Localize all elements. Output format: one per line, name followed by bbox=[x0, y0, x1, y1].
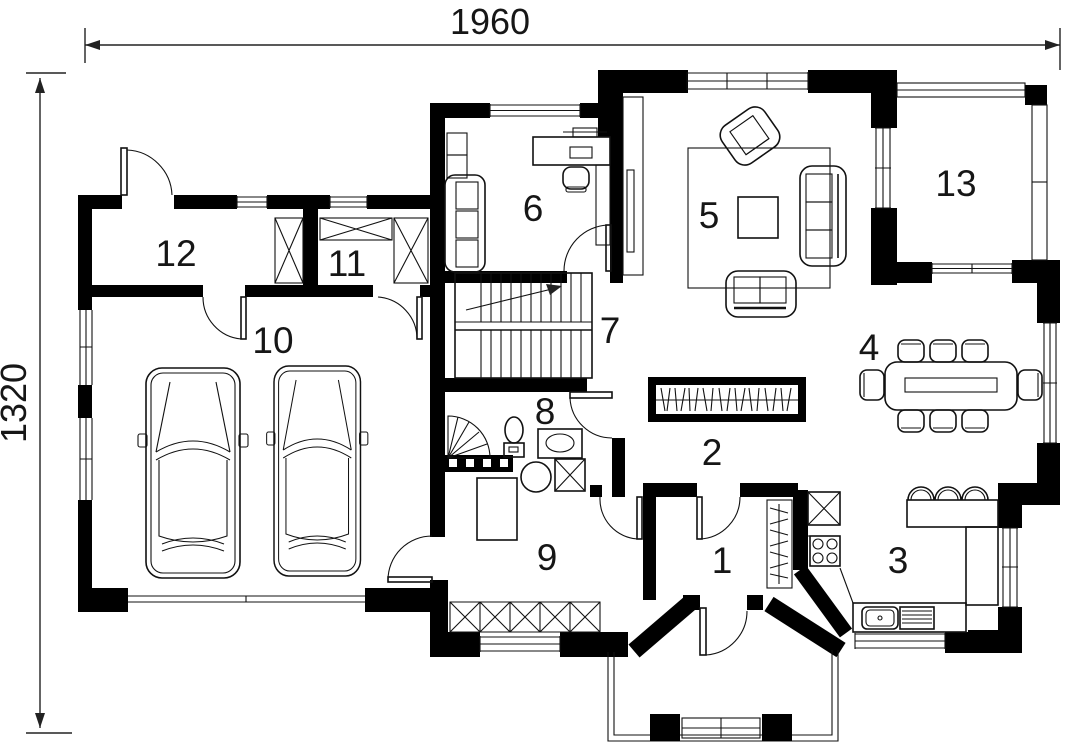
room-label-11: 11 bbox=[328, 243, 366, 284]
boiler-icon bbox=[521, 462, 551, 492]
dim-arrow-left bbox=[85, 40, 100, 50]
sofa-small-icon bbox=[726, 271, 796, 317]
door-room12-garage bbox=[203, 297, 246, 339]
porch-column-left bbox=[650, 714, 680, 741]
window-kitchen-south bbox=[855, 633, 945, 649]
wardrobe-room12-icon bbox=[275, 218, 303, 283]
room-label-1: 1 bbox=[712, 540, 733, 581]
window-dining-east bbox=[1043, 323, 1057, 443]
window-kitchen-east bbox=[1002, 528, 1018, 607]
window-room11 bbox=[330, 196, 367, 208]
office-cabinet-icon bbox=[447, 133, 467, 178]
door-room1-hall bbox=[697, 497, 740, 539]
staircase-icon bbox=[455, 273, 592, 378]
porch bbox=[608, 650, 838, 741]
shelf-unit-icon bbox=[623, 97, 643, 275]
window-room6 bbox=[490, 104, 580, 117]
porch-column-right bbox=[762, 714, 792, 741]
room-label-4: 4 bbox=[859, 327, 880, 368]
window-room9-south bbox=[480, 636, 560, 652]
armchair-icon bbox=[716, 102, 785, 170]
floor-plan-drawing: 1960 1320 bbox=[0, 0, 1077, 750]
coffee-table-icon bbox=[738, 197, 778, 238]
window-living-north bbox=[687, 72, 808, 90]
door-room9-hall bbox=[600, 497, 642, 539]
stove-icon bbox=[810, 536, 840, 566]
sofa-large-icon bbox=[800, 166, 846, 266]
floor-plan-page: 1960 1320 bbox=[0, 0, 1077, 750]
room-label-12: 12 bbox=[155, 233, 196, 274]
dimension-height-label: 1320 bbox=[0, 363, 34, 443]
appliance-icon bbox=[477, 478, 517, 540]
room-label-2: 2 bbox=[702, 432, 723, 473]
door-room8 bbox=[570, 392, 612, 438]
coat-rack-icon bbox=[767, 500, 792, 588]
kitchen-vent-box-icon bbox=[808, 492, 840, 525]
bar-stools-icon bbox=[908, 487, 988, 500]
dimension-top: 1960 bbox=[85, 1, 1060, 70]
door-room9-garage bbox=[388, 536, 432, 582]
dim-arrow-down bbox=[35, 713, 45, 728]
dimension-width-label: 1960 bbox=[450, 1, 530, 42]
toilet-icon bbox=[504, 417, 524, 457]
kitchen-sink-icon bbox=[862, 607, 934, 629]
window-room12 bbox=[237, 196, 267, 208]
hall-wardrobe-icon bbox=[648, 377, 806, 422]
bathroom-sink-icon bbox=[538, 429, 582, 458]
desk-chair-icon bbox=[563, 167, 589, 192]
room-label-9: 9 bbox=[537, 537, 558, 578]
window-room13 bbox=[932, 263, 1012, 274]
car-icon bbox=[138, 368, 248, 578]
room-label-7: 7 bbox=[600, 310, 621, 351]
dim-arrow-right bbox=[1045, 40, 1060, 50]
car-icon-2 bbox=[267, 366, 368, 576]
basement-stair-icon bbox=[448, 416, 490, 458]
office-sofa-icon bbox=[445, 175, 485, 272]
dim-arrow-up bbox=[35, 78, 45, 93]
window-garage-west-2 bbox=[80, 418, 92, 500]
garage-door bbox=[128, 596, 365, 602]
door-room12-exterior bbox=[121, 148, 172, 195]
window-living-east bbox=[875, 128, 891, 208]
room-label-8: 8 bbox=[535, 391, 556, 432]
room-label-10: 10 bbox=[252, 320, 293, 361]
room-label-13: 13 bbox=[935, 163, 976, 204]
dining-table-icon bbox=[885, 362, 1017, 410]
dimension-left: 1320 bbox=[0, 73, 72, 733]
room-label-5: 5 bbox=[699, 195, 720, 236]
door-room6 bbox=[564, 225, 611, 271]
window-garage-west-1 bbox=[80, 310, 92, 385]
door-room11-garage bbox=[378, 297, 422, 339]
room-label-6: 6 bbox=[523, 188, 544, 229]
dining-chairs-icon bbox=[860, 340, 1042, 432]
closet-row-icon bbox=[450, 602, 600, 632]
room-label-3: 3 bbox=[888, 540, 909, 581]
walls bbox=[78, 70, 1060, 657]
front-door bbox=[700, 608, 747, 655]
shaft-box-icon bbox=[555, 459, 585, 491]
